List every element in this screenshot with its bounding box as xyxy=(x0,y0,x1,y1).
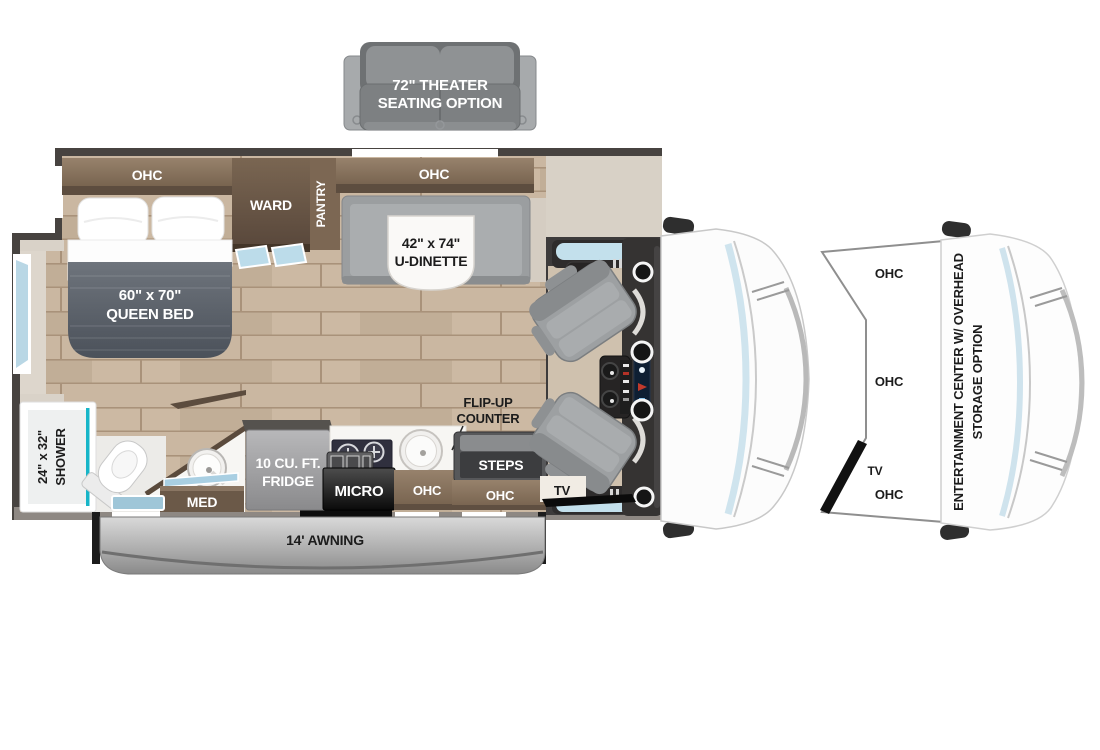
micro-label: MICRO xyxy=(335,483,385,500)
wardrobe-label: WARD xyxy=(250,197,292,213)
flip-counter-label-line2: COUNTER xyxy=(457,411,521,426)
awning: 14' AWNING xyxy=(92,512,546,574)
entry-ohc: OHC xyxy=(452,480,548,510)
bedroom-window-glass xyxy=(16,260,28,368)
dinette-ohc-label: OHC xyxy=(419,166,450,182)
entertainment-label-line1: ENTERTAINMENT CENTER W/ OVERHEAD xyxy=(951,253,966,511)
wardrobe: WARD xyxy=(232,158,310,252)
tv-label: TV xyxy=(554,483,571,498)
front-hood xyxy=(661,216,809,539)
cab-speaker xyxy=(634,263,652,281)
fridge-label-line2: FRIDGE xyxy=(262,473,314,489)
awning-arm-left xyxy=(92,512,100,564)
entry-ohc-label: OHC xyxy=(486,488,515,503)
dinette-side-panel xyxy=(530,198,546,282)
u-dinette: OHC 42" x 74" U-DINETTE xyxy=(336,158,546,290)
shower-name-label: SHOWER xyxy=(53,428,68,486)
flip-counter-label-line1: FLIP-UP xyxy=(463,395,513,410)
glass-step-panel xyxy=(236,246,270,268)
theater-seating-option: 72" THEATER SEATING OPTION xyxy=(344,42,536,130)
option-ohc-mid-label: OHC xyxy=(875,374,904,389)
microwave: MICRO xyxy=(323,468,395,510)
window-top xyxy=(352,149,498,157)
dinette-size-label: 42" x 74" xyxy=(402,235,460,251)
bed-name-label: QUEEN BED xyxy=(106,306,194,323)
cab-speaker xyxy=(635,488,653,506)
theater-label-line1: 72" THEATER xyxy=(392,77,488,94)
med-cabinet: MED xyxy=(160,486,244,512)
entertainment-option-diagram: OHC OHC TV OHC ENTERTAINMENT CENTER W/ O… xyxy=(820,220,1082,541)
awning-label: 14' AWNING xyxy=(286,532,364,548)
option-tv-label: TV xyxy=(868,464,883,478)
option-ohc-bottom-label: OHC xyxy=(875,487,904,502)
floorplan-svg: 72" THEATER SEATING OPTION O xyxy=(0,0,1100,750)
fridge: 10 CU. FT. FRIDGE xyxy=(246,430,330,510)
pantry-label: PANTRY xyxy=(314,180,328,227)
shower: 24" x 32" SHOWER xyxy=(20,402,96,512)
console-knob xyxy=(602,391,618,407)
kitchen-ohc: OHC xyxy=(394,470,460,510)
bed-size-label: 60" x 70" xyxy=(119,287,182,304)
shower-size-label: 24" x 32" xyxy=(35,430,50,484)
console-knob xyxy=(602,363,618,379)
bedroom-ohc: OHC xyxy=(62,158,232,195)
main-floorplan: OHC WARD PANTRY 60" x 70" xyxy=(12,148,809,539)
dinette-name-label: U-DINETTE xyxy=(395,253,468,269)
bath-step-mat xyxy=(112,496,164,510)
pantry: PANTRY xyxy=(310,158,340,250)
fridge-label-line1: 10 CU. FT. xyxy=(256,455,321,471)
kitchen-ohc-label: OHC xyxy=(413,483,442,498)
cab-speaker xyxy=(632,342,652,362)
cabover-area xyxy=(546,156,662,240)
steps-label: STEPS xyxy=(479,457,524,473)
center-console xyxy=(600,356,632,418)
slideout-wall-top xyxy=(20,240,64,251)
theater-label-line2: SEATING OPTION xyxy=(378,95,502,112)
rv-floorplan-diagram: 72" THEATER SEATING OPTION O xyxy=(0,0,1100,750)
window-left xyxy=(55,166,63,218)
entertainment-label-line2: STORAGE OPTION xyxy=(970,325,985,440)
cab-speaker xyxy=(632,400,652,420)
med-label: MED xyxy=(187,494,218,510)
option-ohc-top-label: OHC xyxy=(875,266,904,281)
glass-step-panel xyxy=(272,244,306,266)
bedroom-ohc-label: OHC xyxy=(132,167,163,183)
